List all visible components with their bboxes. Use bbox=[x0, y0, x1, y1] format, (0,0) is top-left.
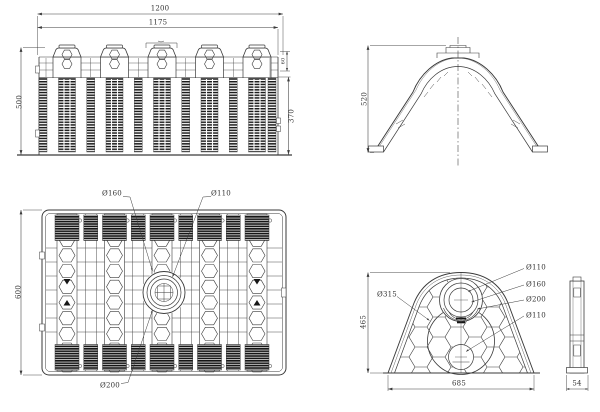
side-view-geometry bbox=[368, 37, 548, 167]
front-view-geometry bbox=[17, 14, 292, 155]
plan-view-geometry bbox=[21, 197, 286, 384]
drawing-canvas bbox=[0, 0, 600, 412]
technical-drawing-page: 1200 1175 500 370 60 520 600 Ø160 Ø110 Ø… bbox=[0, 0, 600, 412]
end-view-geometry bbox=[368, 269, 588, 392]
